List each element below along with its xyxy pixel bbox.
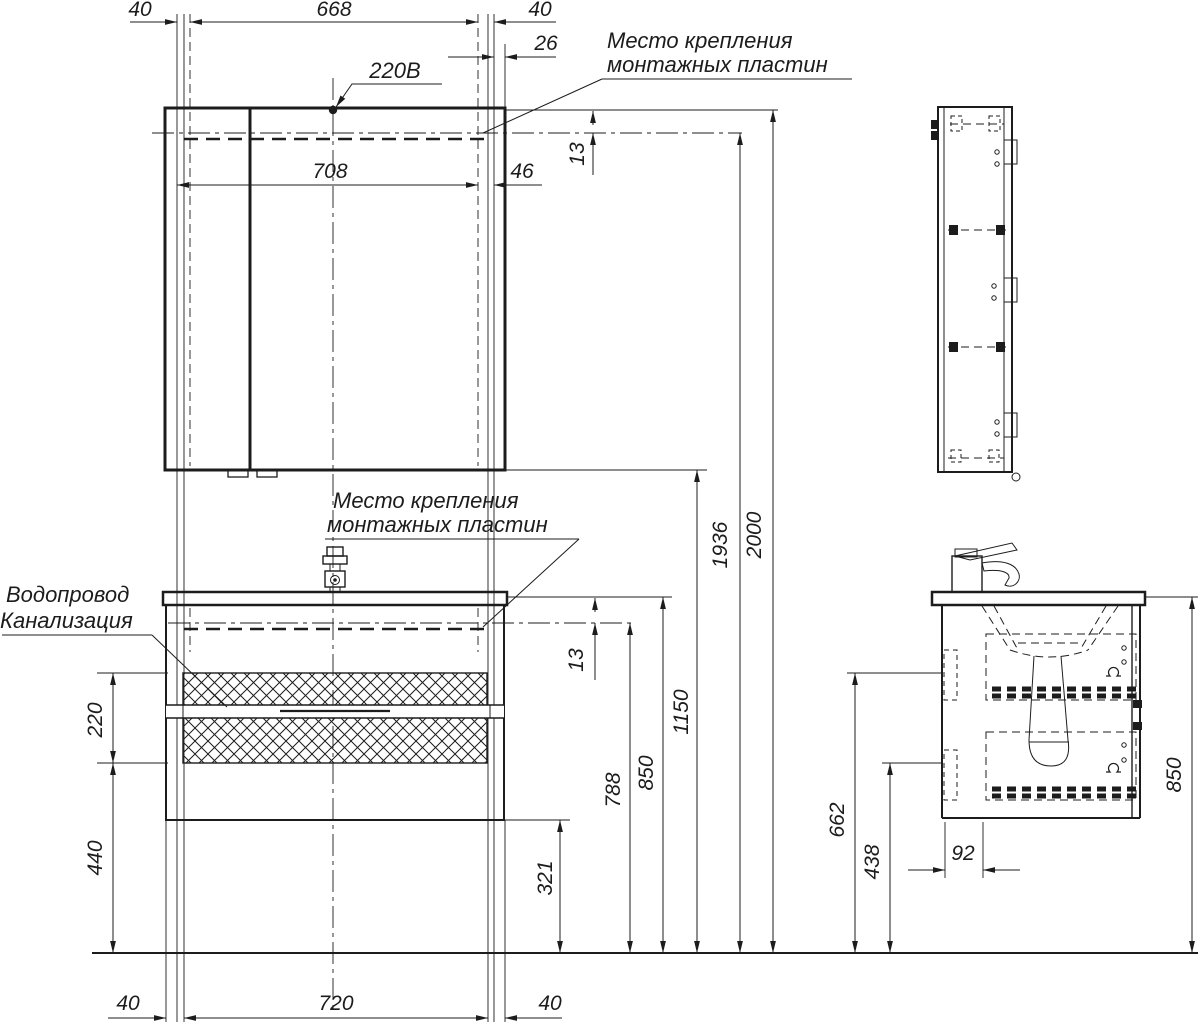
dim-top-offset-left: 40: [128, 0, 152, 21]
dim-vanity-width: 720: [318, 992, 353, 1015]
dim-440: 440: [84, 840, 107, 875]
axis-and-extension-lines: [97, 14, 1198, 1022]
power-label: 220В: [368, 58, 420, 83]
dim-edge-offset: 26: [533, 32, 558, 55]
back-bracket-upper: [944, 650, 957, 700]
water-supply-label: Водопровод: [6, 582, 129, 607]
dim-right-gap: 46: [510, 160, 534, 183]
dim-hatch-band: 220: [84, 702, 107, 738]
hinge-middle: [1004, 278, 1017, 302]
sink-basin-hidden: [982, 606, 1118, 657]
back-bracket-lower: [944, 750, 957, 800]
side-view-vanity: [932, 543, 1145, 818]
shelf-bracket: [996, 342, 1005, 352]
faucet-spout: [982, 562, 1019, 587]
faucet-side: [952, 543, 1019, 592]
mounting-plates-label-top-line1: Место крепления: [607, 28, 793, 53]
fastener-symbol: [1106, 667, 1121, 676]
dim-top-offset-right: 40: [528, 0, 552, 21]
hinge-bottom: [1004, 413, 1017, 437]
dim-side-height: 850: [1163, 757, 1186, 792]
wall-clip: [931, 131, 939, 140]
door-bumper: [1012, 473, 1020, 481]
dim-counter-height: 850: [635, 755, 658, 790]
sewerage-label: Канализация: [0, 608, 133, 633]
shelf-bracket: [996, 225, 1005, 235]
dim-mirror-plate-offset: 13: [566, 142, 589, 166]
mounting-plates-label-top-line2: монтажных пластин: [607, 52, 828, 77]
shelf-bracket: [949, 225, 958, 235]
countertop-side: [932, 592, 1145, 605]
technical-drawing-page: 40 668 40 26 708 46 13 13 321 788 850 11…: [0, 0, 1200, 1027]
power-point-dot: [329, 106, 337, 114]
mounting-plates-label-mid-line2: монтажных пластин: [327, 512, 548, 537]
dim-321: 321: [534, 860, 557, 895]
front-clip: [1133, 722, 1142, 730]
drain-trap: [1029, 656, 1069, 766]
side-view-mirror-cabinet: [931, 107, 1020, 481]
wall-clip: [931, 120, 939, 129]
dim-mirror-inner-width: 708: [312, 160, 347, 183]
shelf-bracket: [949, 342, 958, 352]
dim-plate-span: 668: [316, 0, 351, 21]
dim-overall-height: 2000: [743, 511, 766, 559]
dim-1150: 1150: [670, 689, 693, 734]
dim-counter-plate-offset: 13: [565, 648, 588, 672]
fastener-symbol: [1106, 763, 1121, 772]
dim-788: 788: [602, 772, 625, 807]
faucet-front: [323, 547, 347, 592]
mounting-plates-label-mid-line1: Место крепления: [333, 488, 519, 513]
dim-drain-offset: 92: [951, 842, 975, 865]
dim-lower-bracket-height: 438: [861, 844, 884, 879]
dim-upper-bracket-height: 662: [826, 802, 849, 837]
front-view-vanity: [163, 592, 507, 820]
dim-bottom-offset-left: 40: [116, 992, 140, 1015]
front-clip: [1133, 700, 1142, 708]
dim-1936: 1936: [709, 521, 732, 568]
furniture-installation-drawing: 40 668 40 26 708 46 13 13 321 788 850 11…: [0, 0, 1200, 1027]
countertop-front: [163, 592, 507, 605]
dim-bottom-offset-right: 40: [538, 992, 562, 1015]
hinge-top: [1004, 140, 1017, 164]
